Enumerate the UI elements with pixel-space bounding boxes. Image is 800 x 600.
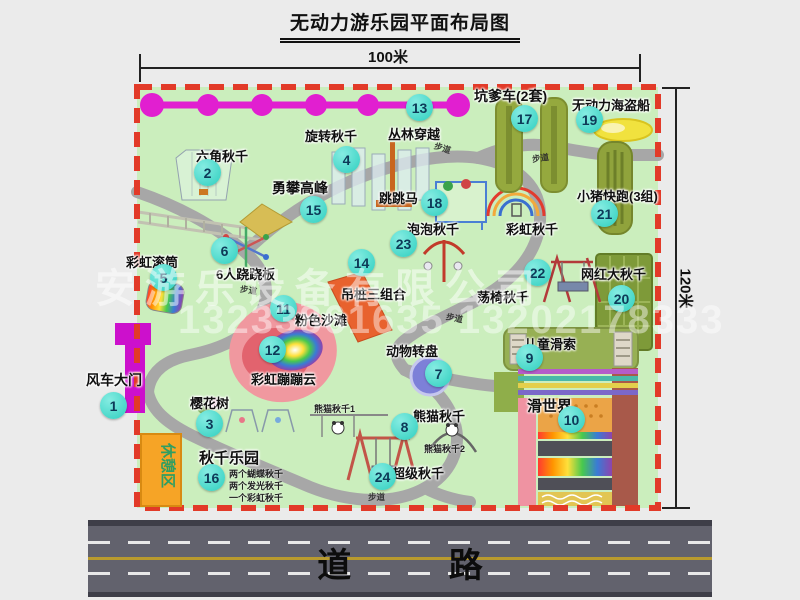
- badge-cherry-tree: 3: [196, 410, 223, 437]
- badge-swing-park: 16: [198, 464, 225, 491]
- playground-layout-map: 无动力游乐园平面布局图 100米 120米 安游乐设备有限公司 13233861…: [0, 0, 800, 600]
- badge-pirate-ship: 19: [576, 106, 603, 133]
- badge-pig-run: 21: [591, 200, 618, 227]
- label-panda-swing-2: 熊猫秋千2: [424, 442, 465, 455]
- badge-panda-swing: 8: [391, 413, 418, 440]
- label-jungle-crossing: 丛林穿越: [388, 124, 440, 143]
- label-panda-swing: 熊猫秋千: [413, 406, 465, 425]
- road: 道 路: [88, 520, 712, 597]
- label-panda-swing-1: 熊猫秋千1: [314, 402, 355, 415]
- label-pig-run: 小猪快跑(3组): [577, 186, 658, 205]
- badge-rotating-swing: 4: [333, 146, 360, 173]
- badge-peak-climbing: 15: [300, 196, 327, 223]
- dimension-width-label: 100米: [368, 46, 408, 67]
- badge-windmill-gate: 1: [100, 392, 127, 419]
- label-rainbow-bounce-cloud: 彩虹蹦蹦云: [251, 369, 316, 388]
- badge-kids-zipline: 9: [516, 344, 543, 371]
- badge-slide-world: 10: [558, 406, 585, 433]
- rest-area: 休憩区: [140, 433, 182, 507]
- walkway-tag: 步道: [531, 151, 550, 165]
- road-label: 道 路: [88, 538, 712, 587]
- label-kengdie-car: 坑爹车(2套): [474, 86, 547, 106]
- badge-super-swing: 24: [369, 463, 396, 490]
- badge-animal-carousel: 7: [425, 360, 452, 387]
- watermark-phone: 13233861635 13202178333: [178, 298, 725, 343]
- rest-area-label: 休憩区: [158, 443, 179, 488]
- label-peak-climbing: 勇攀高峰: [272, 178, 328, 198]
- badge-jumping-horse: 18: [421, 189, 448, 216]
- label-super-swing: 超级秋千: [392, 463, 444, 482]
- badge-jungle-crossing: 13: [406, 94, 433, 121]
- label-windmill-gate: 风车大门: [86, 370, 142, 390]
- label-animal-carousel: 动物转盘: [386, 341, 438, 360]
- label-rainbow-swing: 彩虹秋千: [506, 219, 558, 238]
- walkway-tag: 步道: [368, 491, 385, 503]
- badge-hexagon-swing: 2: [194, 159, 221, 186]
- label-jumping-horse: 跳跳马: [379, 188, 418, 207]
- badge-bubble-swing: 23: [390, 230, 417, 257]
- label-big-swing: 网红大秋千: [581, 264, 646, 283]
- label-rotating-swing: 旋转秋千: [305, 126, 357, 145]
- label-swing-park-item-3: 一个彩虹秋千: [229, 491, 283, 504]
- badge-kengdie-car: 17: [511, 105, 538, 132]
